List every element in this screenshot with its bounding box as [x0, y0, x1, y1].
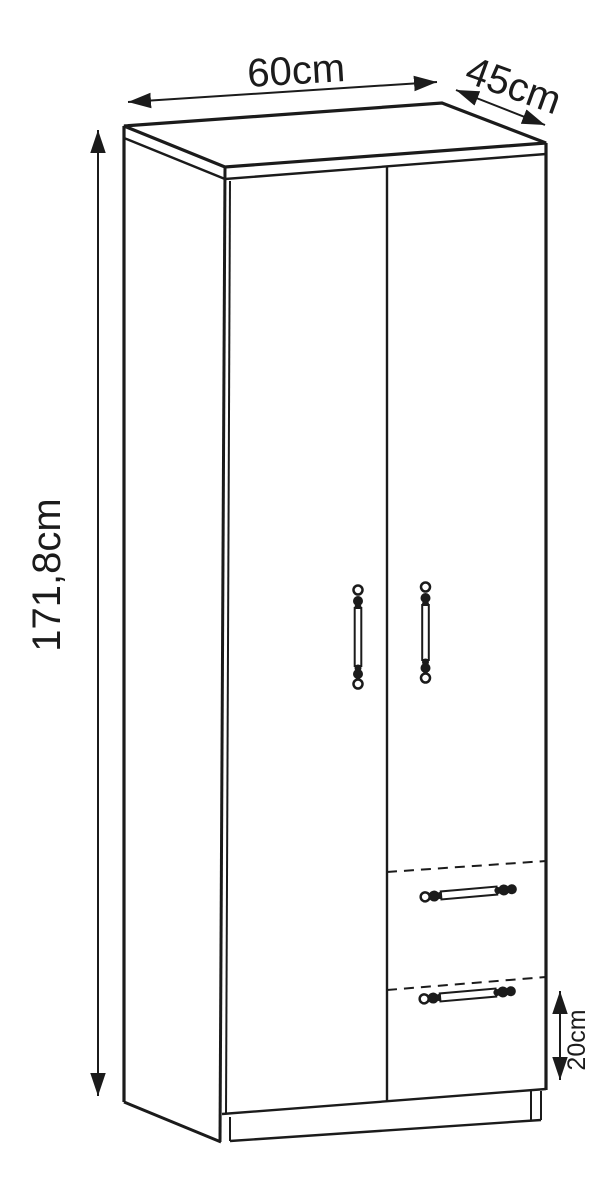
- drawing-canvas: 60cm 45cm 171,8cm 20cm: [0, 0, 613, 1200]
- plinth: [230, 1091, 541, 1141]
- handle-bottom-ball: [421, 674, 430, 683]
- left-side-bottom-edge: [124, 1102, 221, 1142]
- dimension-height: 171,8cm: [25, 130, 98, 1096]
- drawer-1-handle: [420, 883, 517, 902]
- drawer-height-dimension-label: 20cm: [563, 1009, 591, 1070]
- height-dimension-label: 171,8cm: [25, 498, 69, 651]
- drawer-middle-dashed-line: [387, 977, 546, 990]
- width-dimension-label: 60cm: [246, 46, 346, 96]
- cabinet-outline: [124, 103, 546, 1142]
- left-door-handle: [353, 586, 363, 689]
- drawer-dashed-lines: [387, 861, 546, 990]
- dimension-width: 60cm: [128, 46, 437, 102]
- right-door-handle: [421, 583, 431, 683]
- handle-top-ball: [421, 583, 430, 592]
- top-panel: [124, 103, 546, 167]
- front-left-edge: [220, 168, 225, 1142]
- dimension-drawer-height: 20cm: [560, 991, 591, 1080]
- handle-bottom-ball: [354, 680, 363, 689]
- handle-bar: [422, 605, 429, 660]
- handle-bar: [355, 608, 362, 666]
- handle-bar: [440, 989, 496, 1002]
- plinth-bottom-edge: [230, 1120, 541, 1141]
- left-door-edge: [226, 181, 230, 1114]
- handle-left-ball: [419, 994, 429, 1004]
- handle-bar: [441, 887, 497, 900]
- handle-top-ball: [354, 586, 363, 595]
- wardrobe-dimension-diagram: 60cm 45cm 171,8cm 20cm: [0, 0, 613, 1200]
- drawer-top-dashed-line: [387, 861, 546, 872]
- doors-bottom-edge: [222, 1089, 546, 1114]
- handle-left-ball: [420, 892, 430, 902]
- drawer-2-handle: [419, 985, 516, 1004]
